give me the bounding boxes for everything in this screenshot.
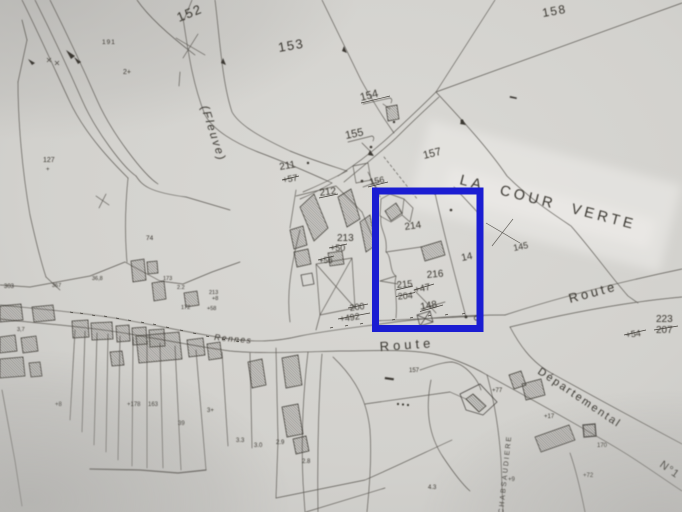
svg-text:216: 216 (426, 269, 444, 281)
svg-text:157: 157 (409, 368, 420, 374)
svg-text:367: 367 (52, 283, 61, 289)
svg-text:+56: +56 (319, 256, 333, 265)
svg-text:2+: 2+ (123, 69, 131, 76)
svg-text:36,8: 36,8 (92, 276, 103, 282)
svg-text:191: 191 (102, 39, 116, 46)
svg-text:173: 173 (163, 276, 172, 282)
svg-text:3,7: 3,7 (17, 327, 25, 333)
svg-text:+8: +8 (212, 296, 218, 302)
svg-text:172: 172 (181, 305, 190, 311)
svg-text:223: 223 (656, 314, 673, 325)
svg-text:207: 207 (656, 325, 673, 336)
svg-text:+58: +58 (207, 306, 216, 312)
svg-text:74: 74 (146, 235, 154, 242)
svg-text:127: 127 (43, 157, 55, 164)
svg-text:2.8: 2.8 (302, 459, 311, 465)
svg-text:2.9: 2.9 (276, 440, 285, 446)
svg-text:303: 303 (4, 284, 15, 290)
svg-text:2.2: 2.2 (177, 285, 185, 291)
svg-text:+77: +77 (492, 388, 503, 394)
svg-text:+50: +50 (330, 243, 345, 253)
svg-text:+: + (46, 167, 50, 173)
